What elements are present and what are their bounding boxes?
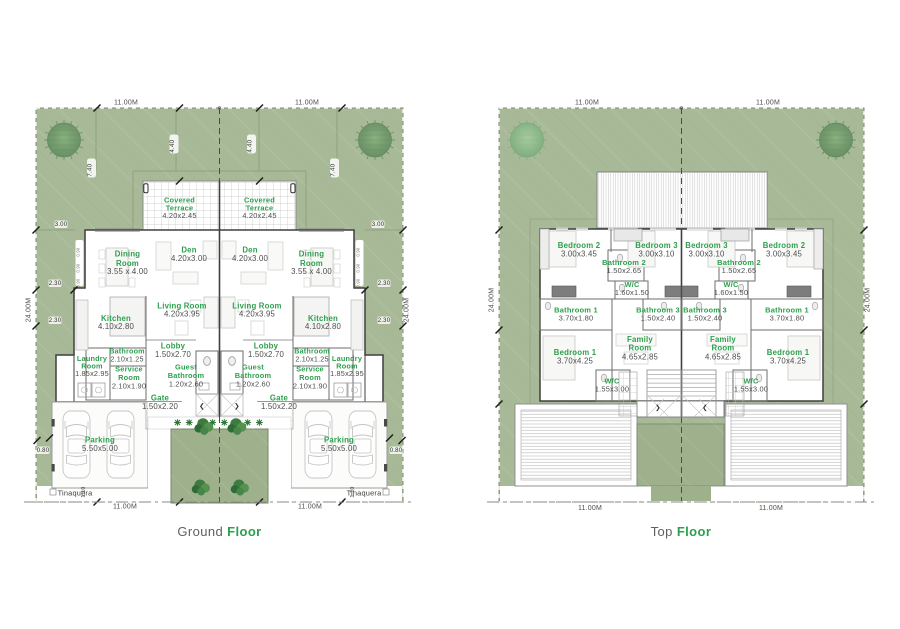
svg-text:0.80: 0.80 xyxy=(37,448,50,454)
svg-text:1.50x2.70: 1.50x2.70 xyxy=(248,350,285,359)
svg-text:1.85x2.95: 1.85x2.95 xyxy=(330,369,364,378)
svg-text:24.00M: 24.00M xyxy=(865,288,872,313)
svg-text:24.00M: 24.00M xyxy=(489,288,496,313)
svg-text:1.55x3.00: 1.55x3.00 xyxy=(595,385,629,394)
svg-text:1.50x2.20: 1.50x2.20 xyxy=(261,402,298,411)
svg-text:2.10x1.25: 2.10x1.25 xyxy=(110,355,143,364)
svg-text:2.30: 2.30 xyxy=(378,281,391,287)
svg-text:24.00M: 24.00M xyxy=(26,298,33,323)
svg-text:1.50x2.40: 1.50x2.40 xyxy=(641,314,676,323)
svg-text:4.20x3.00: 4.20x3.00 xyxy=(232,254,269,263)
svg-text:3.00x3.45: 3.00x3.45 xyxy=(766,250,803,259)
svg-text:1.10: 1.10 xyxy=(81,486,87,497)
svg-text:2.10x1.90: 2.10x1.90 xyxy=(112,382,146,391)
svg-text:11.00M: 11.00M xyxy=(114,100,138,107)
svg-text:1.50x2.70: 1.50x2.70 xyxy=(155,350,192,359)
svg-text:7.40: 7.40 xyxy=(87,163,94,176)
svg-text:1.50x2.65: 1.50x2.65 xyxy=(607,266,642,275)
svg-text:11.00M: 11.00M xyxy=(578,505,602,512)
svg-text:Room: Room xyxy=(712,344,735,353)
svg-text:4.20x2.45: 4.20x2.45 xyxy=(242,211,276,220)
svg-text:3.00x3.45: 3.00x3.45 xyxy=(561,250,598,259)
svg-text:0.90: 0.90 xyxy=(76,278,81,287)
svg-text:Room: Room xyxy=(629,344,652,353)
svg-text:0.90: 0.90 xyxy=(76,247,81,256)
svg-text:5.50x5.00: 5.50x5.00 xyxy=(321,444,358,453)
svg-text:4.65x2.85: 4.65x2.85 xyxy=(705,353,742,362)
svg-text:1.55x3.00: 1.55x3.00 xyxy=(734,385,768,394)
svg-text:4.20x2.45: 4.20x2.45 xyxy=(162,211,196,220)
svg-text:0.90: 0.90 xyxy=(356,278,361,287)
svg-text:5.50x5.00: 5.50x5.00 xyxy=(82,444,119,453)
svg-text:2.30: 2.30 xyxy=(49,281,62,287)
svg-text:11.00M: 11.00M xyxy=(575,100,599,107)
svg-text:11.00M: 11.00M xyxy=(295,100,319,107)
svg-text:7.40: 7.40 xyxy=(330,163,337,176)
svg-text:1.20x2.60: 1.20x2.60 xyxy=(169,380,203,389)
svg-text:11.00M: 11.00M xyxy=(759,505,783,512)
svg-text:Tinaquera: Tinaquera xyxy=(58,489,93,498)
svg-text:3.55 x 4.00: 3.55 x 4.00 xyxy=(107,267,148,276)
svg-text:3.00: 3.00 xyxy=(55,222,68,228)
svg-text:2.30: 2.30 xyxy=(49,318,62,324)
svg-text:❮: ❮ xyxy=(199,402,205,410)
svg-text:11.00M: 11.00M xyxy=(113,504,137,511)
svg-text:4.40: 4.40 xyxy=(247,139,254,152)
svg-text:11.00M: 11.00M xyxy=(298,504,322,511)
svg-text:4.20x3.95: 4.20x3.95 xyxy=(164,309,201,318)
svg-text:2.10x1.25: 2.10x1.25 xyxy=(295,355,328,364)
svg-text:4.10x2.80: 4.10x2.80 xyxy=(98,322,135,331)
svg-text:2.30: 2.30 xyxy=(378,318,391,324)
svg-text:4.40: 4.40 xyxy=(169,139,176,152)
svg-text:1.50x2.40: 1.50x2.40 xyxy=(688,314,723,323)
svg-text:3.70x1.80: 3.70x1.80 xyxy=(770,314,805,323)
svg-text:3.55 x 4.00: 3.55 x 4.00 xyxy=(291,267,332,276)
svg-text:1.50x2.20: 1.50x2.20 xyxy=(142,402,179,411)
svg-text:0.90: 0.90 xyxy=(356,247,361,256)
svg-text:1.60x1.50: 1.60x1.50 xyxy=(615,288,649,297)
svg-text:❯: ❯ xyxy=(234,402,240,410)
svg-text:11.00M: 11.00M xyxy=(756,100,780,107)
svg-text:0.90: 0.90 xyxy=(76,263,81,272)
svg-text:3.70x4.25: 3.70x4.25 xyxy=(770,357,807,366)
svg-text:Ground Floor: Ground Floor xyxy=(177,524,261,539)
svg-text:2.10x1.90: 2.10x1.90 xyxy=(293,382,327,391)
svg-text:24.00M: 24.00M xyxy=(404,298,411,323)
svg-text:❮: ❮ xyxy=(702,404,708,412)
svg-text:0.90: 0.90 xyxy=(356,263,361,272)
svg-text:3.00: 3.00 xyxy=(372,222,385,228)
svg-text:4.20x3.00: 4.20x3.00 xyxy=(171,254,208,263)
svg-text:1.20x2.60: 1.20x2.60 xyxy=(236,380,270,389)
svg-text:Dining: Dining xyxy=(115,250,140,259)
svg-text:1.50x2.65: 1.50x2.65 xyxy=(722,266,757,275)
svg-text:4.20x3.95: 4.20x3.95 xyxy=(239,309,276,318)
svg-text:3.70x4.25: 3.70x4.25 xyxy=(557,357,594,366)
svg-text:1.85x2.95: 1.85x2.95 xyxy=(75,369,109,378)
svg-text:Dining: Dining xyxy=(299,250,324,259)
svg-text:4.65x2.85: 4.65x2.85 xyxy=(622,353,659,362)
svg-text:4.10x2.80: 4.10x2.80 xyxy=(305,322,342,331)
svg-text:1.10: 1.10 xyxy=(350,486,356,497)
svg-text:Top Floor: Top Floor xyxy=(651,524,712,539)
svg-text:1.60x1.50: 1.60x1.50 xyxy=(714,288,748,297)
svg-text:0.80: 0.80 xyxy=(390,448,403,454)
svg-text:❯: ❯ xyxy=(655,404,661,412)
svg-text:3.70x1.80: 3.70x1.80 xyxy=(559,314,594,323)
